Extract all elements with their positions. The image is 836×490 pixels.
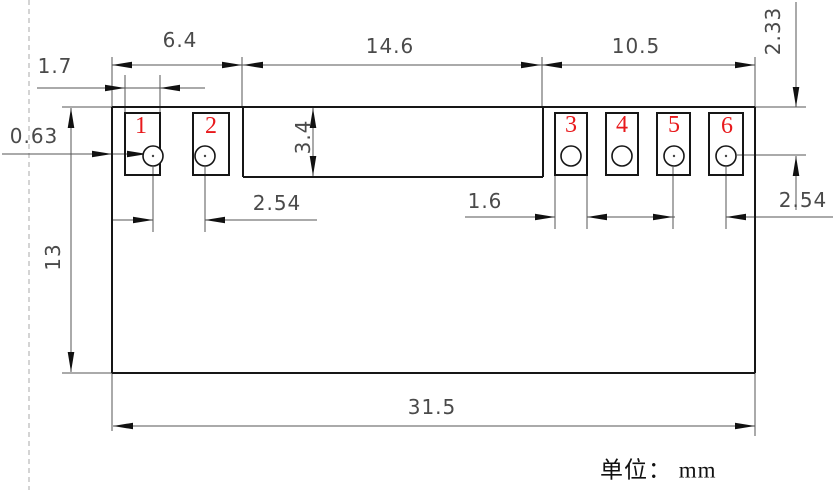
pads bbox=[125, 113, 743, 175]
dim-edge-to-hole: 2.33 bbox=[763, 7, 783, 56]
dim-span-left: 6.4 bbox=[163, 30, 198, 50]
pad-4-hole bbox=[612, 146, 632, 166]
dim-body-width: 31.5 bbox=[408, 397, 457, 417]
dim-span-right: 10.5 bbox=[612, 36, 661, 56]
dim-pitch-right: 2.54 bbox=[779, 190, 828, 210]
dim-pad-width-right: 1.6 bbox=[468, 191, 503, 211]
dim-pitch-left: 2.54 bbox=[253, 193, 302, 213]
holes bbox=[143, 146, 736, 166]
pad-3-hole bbox=[561, 146, 581, 166]
hole-center-marks bbox=[152, 155, 727, 157]
pin-5-number: 5 bbox=[668, 113, 680, 137]
pin-2-number: 2 bbox=[205, 114, 217, 138]
pin-3-number: 3 bbox=[565, 113, 577, 137]
dim-span-middle: 14.6 bbox=[366, 36, 415, 56]
dim-edge-to-pad: 0.63 bbox=[10, 126, 59, 146]
extension-lines bbox=[62, 57, 806, 436]
pin-4-number: 4 bbox=[616, 113, 628, 137]
dim-body-height: 13 bbox=[43, 243, 63, 270]
pin-6-number: 6 bbox=[721, 114, 733, 138]
dim-middle-depth: 3.4 bbox=[293, 120, 313, 155]
middle-section-outline bbox=[243, 107, 543, 177]
pin-1-number: 1 bbox=[135, 114, 147, 138]
unit-note: 单位： mm bbox=[600, 459, 717, 482]
dim-pad-width-left: 1.7 bbox=[38, 56, 73, 76]
technical-drawing-canvas: 6.4 14.6 10.5 1.7 0.63 2.54 1.6 2.54 31.… bbox=[0, 0, 836, 490]
